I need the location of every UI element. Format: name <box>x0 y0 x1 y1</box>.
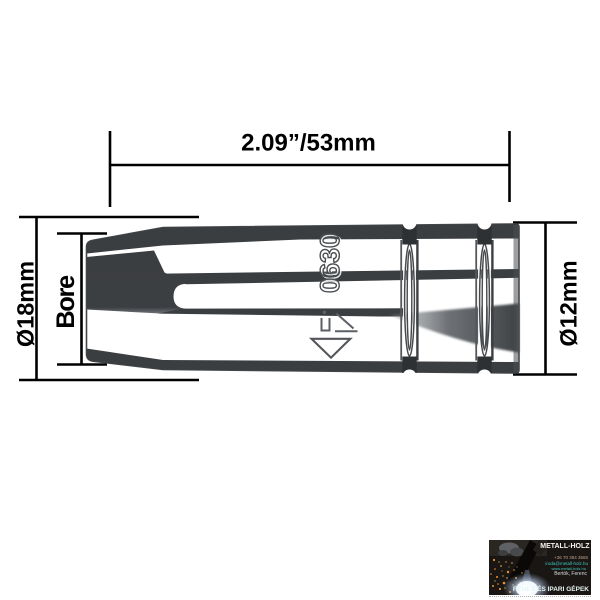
svg-text:Bore: Bore <box>52 275 80 329</box>
svg-text:Ø18mm: Ø18mm <box>13 261 39 347</box>
svg-text:2.09”/53mm: 2.09”/53mm <box>241 130 376 157</box>
svg-text:0630: 0630 <box>315 233 345 293</box>
svg-text:Ø12mm: Ø12mm <box>556 260 582 346</box>
